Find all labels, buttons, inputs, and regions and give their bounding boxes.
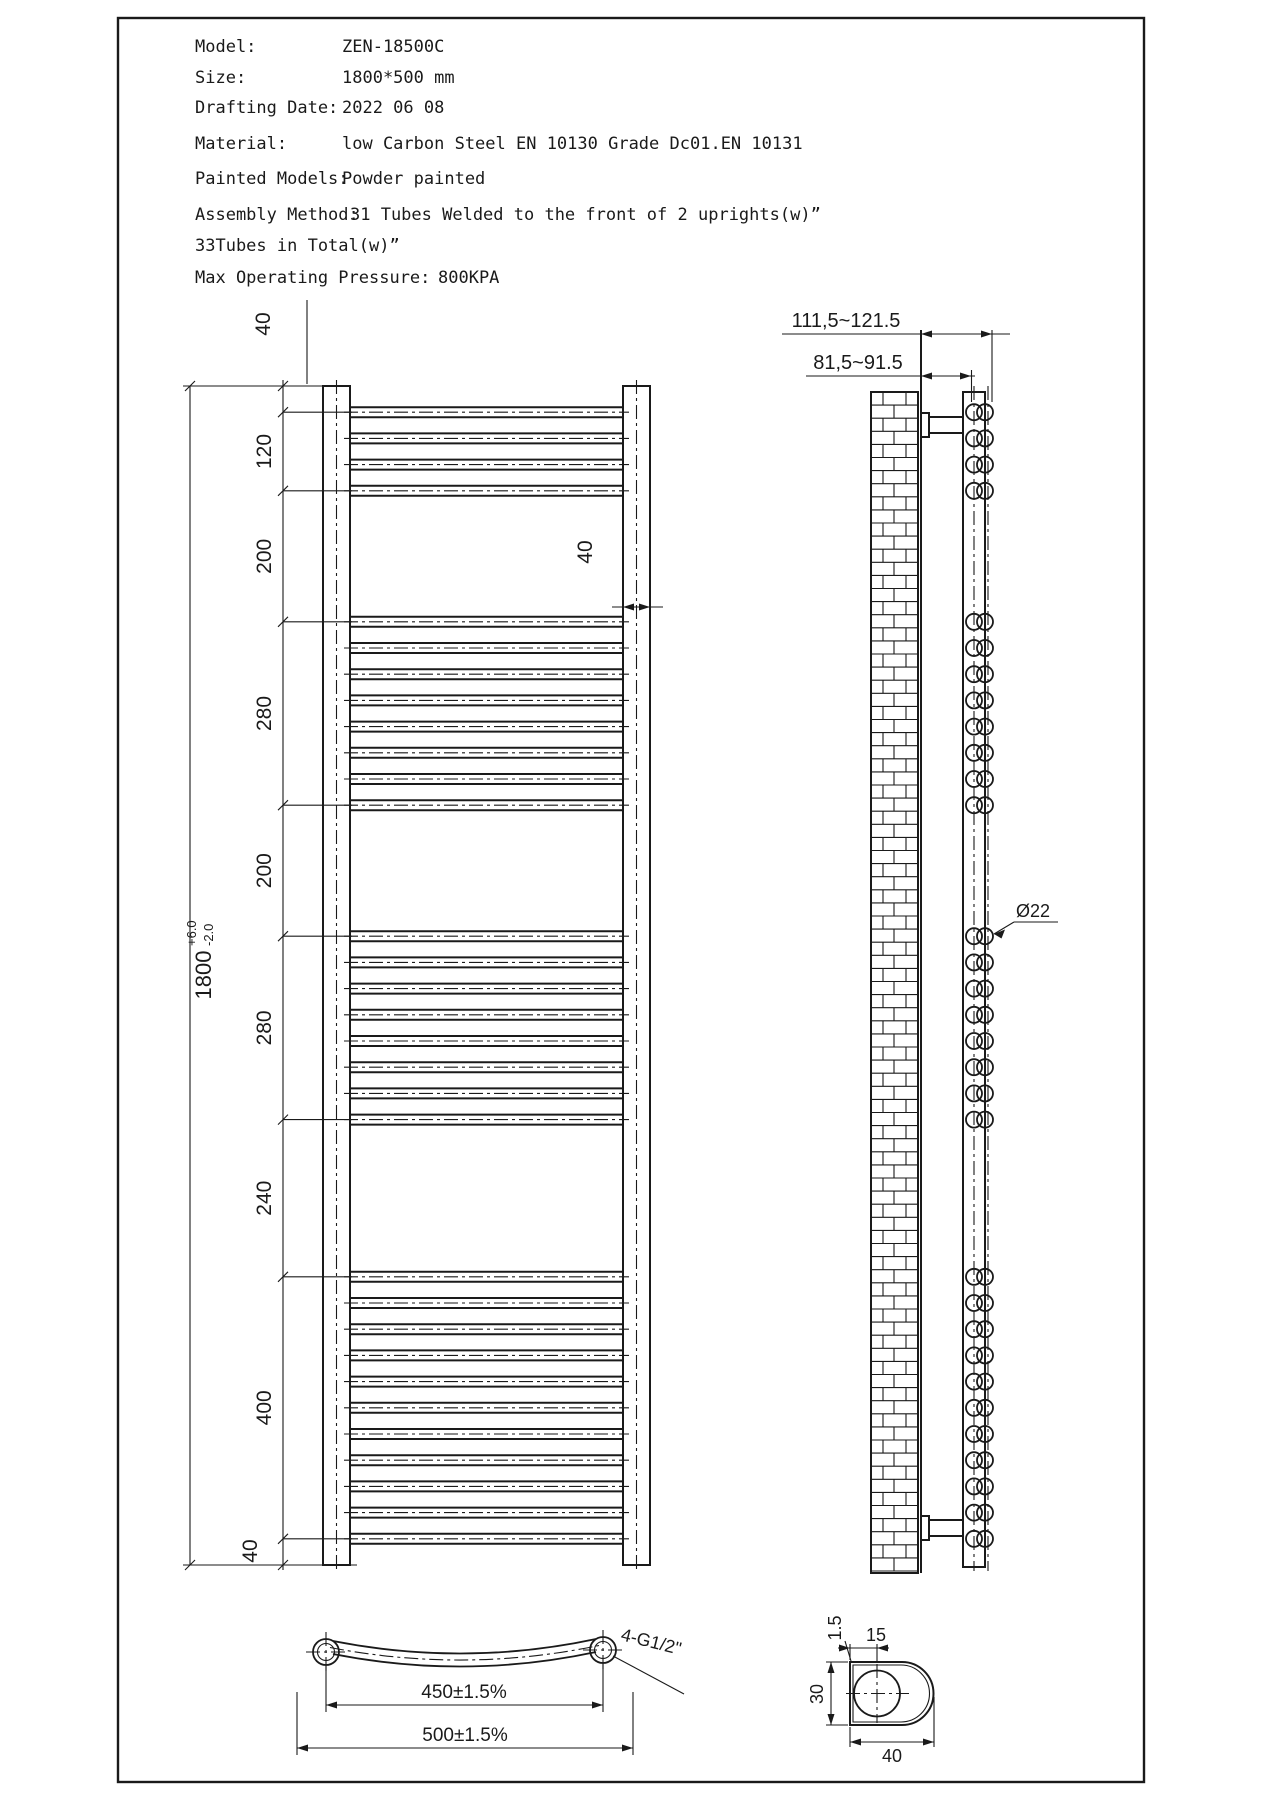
chain-dim-text: 120 [253,434,276,469]
section-depth-dim-text: 40 [882,1746,902,1766]
tube-curve-outer [333,1639,596,1654]
section-width-dim-text: 30 [807,1684,827,1704]
arrowhead [592,1702,603,1709]
chain-labels: 4012020028020028024040040 [239,312,276,1562]
spec-label: Size: [195,68,246,88]
chain-dim-text: 280 [253,1010,276,1045]
arrowhead [326,1702,337,1709]
bracket-arm-bottom [929,1520,963,1536]
dim-tolerance-lower: -2.0 [201,924,216,946]
bottom-plan-view: 4-G1/2" 450±1.5% 500±1.5% [297,1624,684,1755]
spec-value: 2022 06 08 [342,98,444,118]
spec-label: Material: [195,134,287,154]
tube-diameter-text: Ø22 [1016,901,1050,921]
chain-dim-text: 400 [253,1390,276,1425]
arrowhead [921,373,932,380]
upright-width-dim-text: 40 [574,540,597,563]
fitting-callout-text: 4-G1/2" [619,1624,683,1658]
spec-label: Assembly Method: [195,205,359,225]
spec-value: ZEN-18500C [342,37,444,57]
arrowhead [297,1745,308,1752]
spec-value: 800KPA [438,268,499,288]
chain-dim-text: 240 [253,1181,276,1216]
dim-tolerance-upper: +6.0 [184,920,199,946]
port-offset-dim-text: 15 [866,1625,886,1645]
arrowhead [639,604,650,611]
wall-to-upright-dim-text: 81,5~91.5 [813,352,903,374]
chain-dim-text: 40 [252,312,275,335]
arrowhead [850,1739,861,1746]
bracket-arm-top [929,417,963,433]
bracket-flange-bottom [921,1516,929,1540]
spec-label: 33Tubes in Total(w)” [195,236,400,256]
spec-value: low Carbon Steel EN 10130 Grade Dc01.EN … [342,134,803,154]
arrowhead [981,331,992,338]
chain-ticks [278,381,352,1570]
arrowhead [622,1745,633,1752]
spec-label: Max Operating Pressure: [195,268,430,288]
port-centers-dim-text: 450±1.5% [421,1682,507,1703]
leader-line [613,1656,684,1694]
arrowhead [960,373,971,380]
wall-thickness-dim-text: 1.5 [825,1615,845,1640]
wall-to-front-dim-text: 111,5~121.5 [792,310,901,332]
leader-line [994,922,1014,934]
chain-dim-text: 200 [253,853,276,888]
upright-section-detail: 15 1.5 30 40 [807,1615,934,1766]
chain-dim-text: 200 [253,539,276,574]
arrowhead [923,1739,934,1746]
tube-rungs [344,407,629,1544]
arrowhead [828,1714,835,1725]
side-view: 111,5~121.5 81,5~91.5 Ø22 [782,310,1058,1573]
bracket-flange-top [921,413,929,437]
overall-height-dim: 1800 +6.0 -2.0 [184,920,216,999]
title-block: Model: ZEN-18500C Size: 1800*500 mm Draf… [195,37,821,288]
spec-label: Painted Models: [195,169,349,189]
front-view: 1800 +6.0 -2.0 4012020028020028024040040… [183,300,663,1571]
dim-text-1800: 1800 [191,951,216,1000]
wall-brick-hatch [871,392,918,1571]
tube-end-circles [966,404,993,1547]
chain-dim-text: 280 [253,696,276,731]
spec-label: Drafting Date: [195,98,338,118]
spec-value: 1800*500 mm [342,68,455,88]
spec-label: Model: [195,37,256,57]
arrowhead [921,331,932,338]
arrowhead [623,604,634,611]
chain-dim-text: 40 [239,1539,262,1562]
arrowhead [877,1645,888,1652]
spec-value: 31 Tubes Welded to the front of 2 uprigh… [350,205,821,225]
drawing-sheet: Model: ZEN-18500C Size: 1800*500 mm Draf… [0,0,1273,1800]
overall-width-dim-text: 500±1.5% [422,1725,508,1746]
arrowhead [828,1662,835,1673]
spec-value: Powder painted [342,169,485,189]
technical-drawing: Model: ZEN-18500C Size: 1800*500 mm Draf… [0,0,1273,1800]
